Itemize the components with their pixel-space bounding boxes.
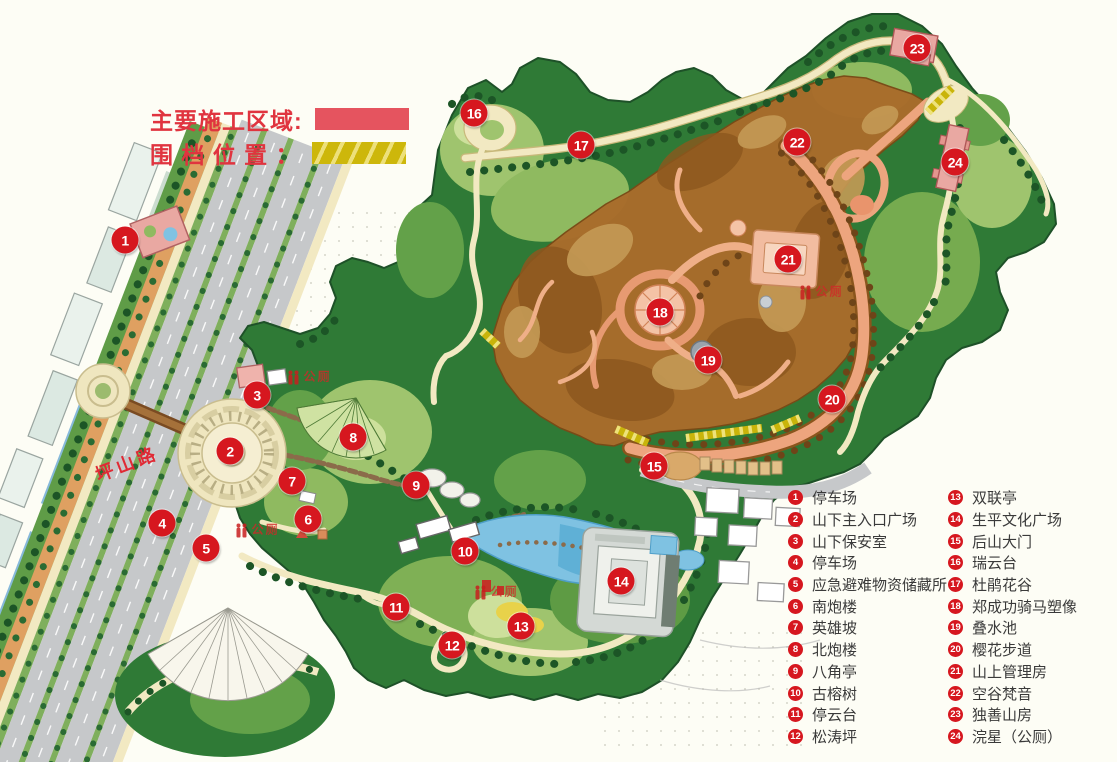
map-marker-16: 16	[461, 100, 488, 127]
legend-construction-row: 主要施工区域:	[150, 102, 409, 136]
map-marker-13: 13	[508, 613, 535, 640]
toilet-label-1: 公厕	[288, 368, 331, 385]
map-marker-8: 8	[340, 424, 367, 451]
map-marker-12: 12	[439, 632, 466, 659]
legend-construction-label: 主要施工区域:	[150, 102, 303, 136]
map-marker-18: 18	[647, 299, 674, 326]
restroom-figure-icon	[481, 590, 485, 600]
toilet-label-4: 公厕	[800, 283, 843, 300]
restroom-figure-icon	[236, 528, 240, 538]
map-marker-2: 2	[217, 438, 244, 465]
map-marker-9: 9	[403, 472, 430, 499]
toilet-label-text: 公厕	[251, 521, 279, 538]
map-marker-20: 20	[819, 386, 846, 413]
restroom-figure-icon	[288, 375, 292, 385]
legend-enclosure-row: 围 档 位 置 ：	[150, 136, 409, 170]
legend-enclosure-label: 围 档 位 置 ：	[150, 136, 300, 170]
toilet-label-text: 公厕	[815, 283, 843, 300]
map-marker-6: 6	[295, 506, 322, 533]
map-marker-1: 1	[112, 227, 139, 254]
map-marker-22: 22	[784, 129, 811, 156]
map-marker-5: 5	[193, 535, 220, 562]
enclosure-swatch	[312, 142, 406, 164]
map-marker-7: 7	[279, 468, 306, 495]
toilet-label-3: 公厕	[475, 583, 518, 600]
map-marker-4: 4	[149, 510, 176, 537]
restroom-figure-icon	[475, 590, 479, 600]
legend: 主要施工区域: 围 档 位 置 ：	[150, 102, 409, 170]
map-marker-3: 3	[244, 382, 271, 409]
map-marker-19: 19	[695, 347, 722, 374]
toilet-label-text: 公厕	[303, 368, 331, 385]
map-marker-23: 23	[904, 35, 931, 62]
map-marker-17: 17	[568, 132, 595, 159]
map-marker-10: 10	[452, 538, 479, 565]
restroom-figure-icon	[800, 290, 804, 300]
map-marker-15: 15	[641, 453, 668, 480]
map-marker-14: 14	[608, 568, 635, 595]
map-marker-24: 24	[942, 149, 969, 176]
restroom-figure-icon	[806, 290, 810, 300]
map-marker-21: 21	[775, 246, 802, 273]
park-plan-canvas: 主要施工区域: 围 档 位 置 ： 坪山路 公厕公厕公厕公厕 123456789…	[0, 0, 1117, 762]
restroom-figure-icon	[294, 375, 298, 385]
map-marker-11: 11	[383, 594, 410, 621]
toilet-label-text: 公厕	[490, 583, 518, 600]
toilet-label-2: 公厕	[236, 521, 279, 538]
construction-area-swatch	[315, 108, 409, 130]
restroom-figure-icon	[242, 528, 246, 538]
